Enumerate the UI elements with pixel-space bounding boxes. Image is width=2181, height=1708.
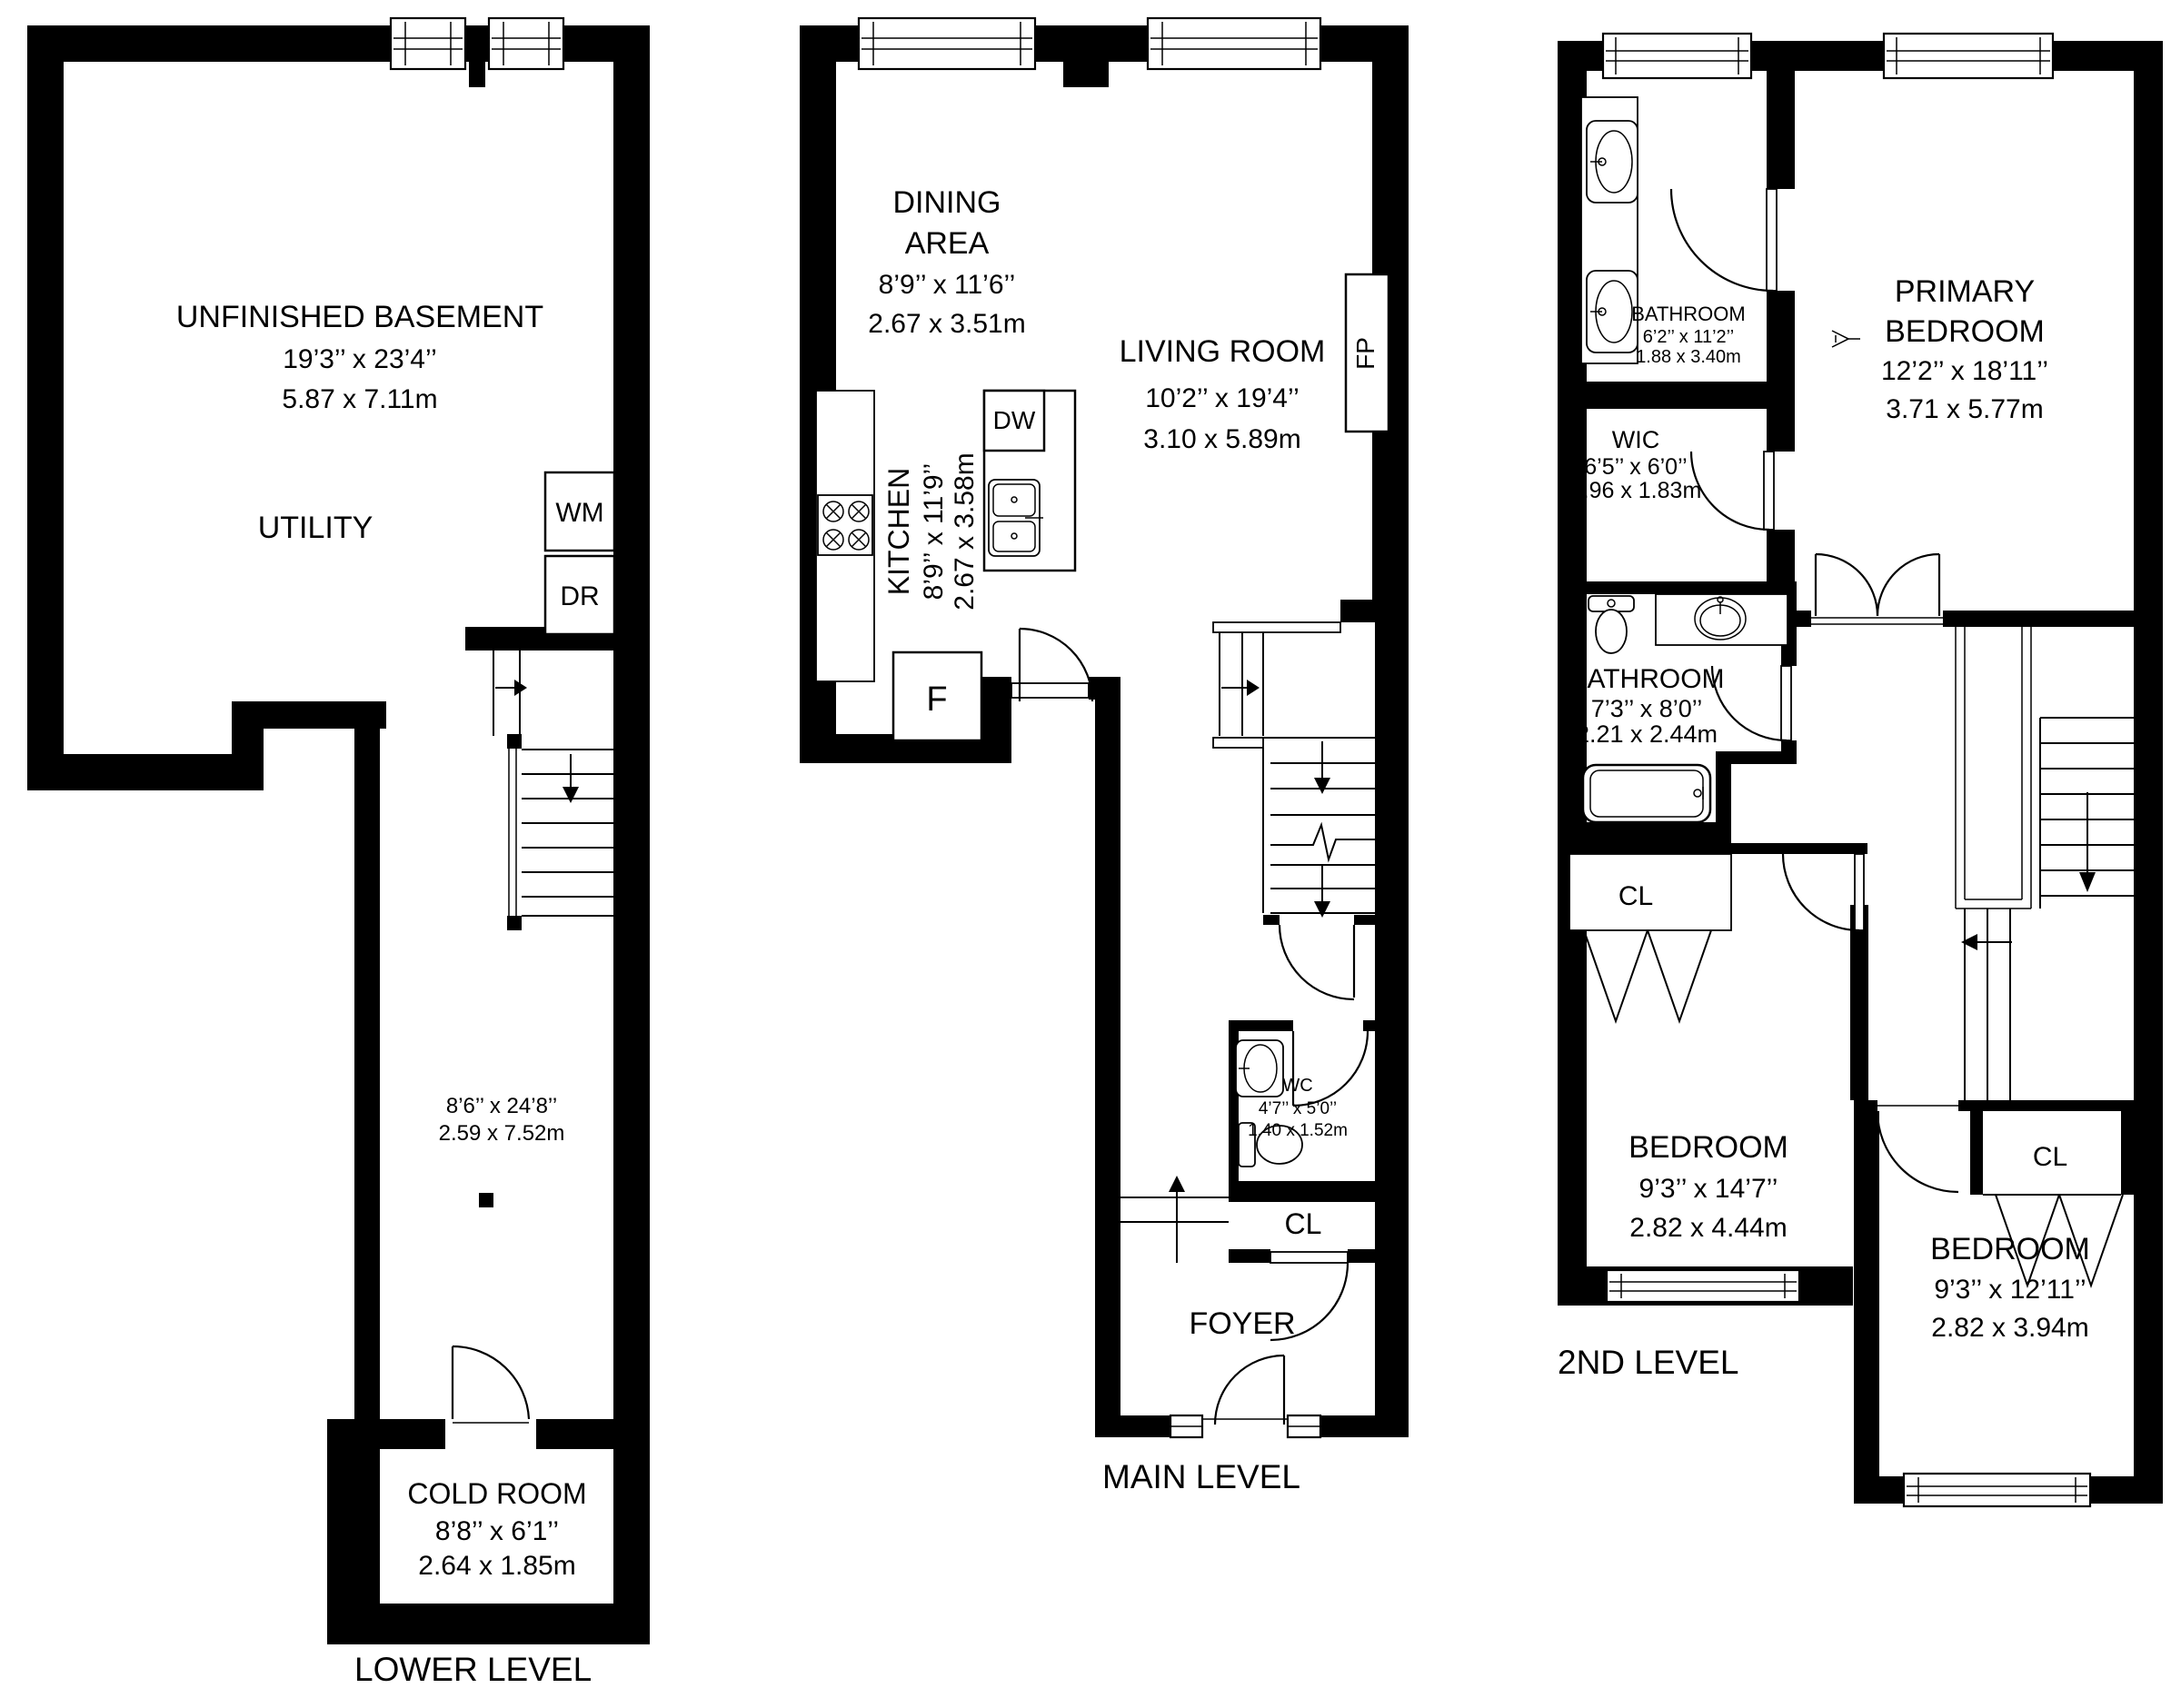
main-stairs bbox=[1213, 622, 1375, 999]
bifold-door-icon bbox=[1584, 930, 1648, 1021]
bathroom2-toilet bbox=[1588, 596, 1634, 653]
primary-metric: 3.71 x 5.77m bbox=[1886, 394, 2043, 424]
stair-arrow-down-icon bbox=[2079, 872, 2096, 892]
bathroom2-imperial: 7’3’’ x 8’0’’ bbox=[1591, 695, 1703, 722]
bedroom3-window bbox=[1904, 1474, 2090, 1506]
main-level-label: MAIN LEVEL bbox=[1102, 1458, 1300, 1495]
kitchen-imperial: 8’9’’ x 11’9’’ bbox=[919, 463, 949, 601]
wc-metric: 1.40 x 1.52m bbox=[1248, 1121, 1348, 1140]
stair-arrow-down-icon bbox=[1314, 778, 1330, 794]
fireplace-label: FP bbox=[1351, 337, 1379, 370]
bathroom2-metric: 2.21 x 2.44m bbox=[1576, 720, 1718, 748]
stair-arrow-down-icon bbox=[1314, 901, 1330, 918]
bathtub bbox=[1583, 765, 1710, 822]
living-metric: 3.10 x 5.89m bbox=[1143, 424, 1300, 454]
dining-name1: DINING bbox=[893, 185, 1001, 220]
second-stairs bbox=[1956, 627, 2134, 1100]
basement-stairs bbox=[493, 650, 613, 930]
bedroom3-imperial: 9’3’’ x 12’11’’ bbox=[1934, 1275, 2086, 1305]
wall-sconce-icon bbox=[1832, 331, 1860, 347]
cold-room-name: COLD ROOM bbox=[407, 1477, 586, 1510]
bedroom2-name: BEDROOM bbox=[1628, 1130, 1788, 1165]
primary-name2: BEDROOM bbox=[1885, 314, 2045, 349]
dishwasher-label: DW bbox=[993, 406, 1036, 434]
living-imperial: 10’2’’ x 19’4’’ bbox=[1145, 383, 1300, 413]
wic-door bbox=[1691, 452, 1774, 530]
wc-sink bbox=[1236, 1040, 1283, 1097]
ensuite-sink-2 bbox=[1587, 271, 1638, 353]
second-bathroom: BATHROOM 7’3’’ x 8’0’’ 2.21 x 2.44m bbox=[1569, 594, 1791, 822]
wc-imperial: 4’7’’ x 5’0’’ bbox=[1259, 1099, 1337, 1118]
ensuite-bathroom: BATHROOM 6’2’’ x 11’2’’ 1.88 x 3.40m bbox=[1581, 97, 1777, 367]
second-window-left bbox=[1603, 34, 1751, 78]
ensuite-sink-1 bbox=[1587, 121, 1638, 203]
stair-arrow-right-icon bbox=[1247, 680, 1260, 696]
main-level-plan: FP DW bbox=[800, 18, 1409, 1495]
primary-name1: PRIMARY bbox=[1895, 274, 2035, 309]
bathroom2-sink bbox=[1656, 594, 1788, 645]
wic-imperial: 6’5’’ x 6’0’’ bbox=[1584, 454, 1688, 480]
utility-label: UTILITY bbox=[258, 511, 373, 545]
bedroom3-name: BEDROOM bbox=[1930, 1232, 2090, 1266]
bedroom2-window bbox=[1607, 1270, 1799, 1302]
kitchen-door bbox=[1011, 629, 1092, 701]
foyer-label: FOYER bbox=[1189, 1306, 1295, 1341]
basement-imperial: 19’3’’ x 23’4’’ bbox=[283, 344, 437, 374]
ensuite-metric: 1.88 x 3.40m bbox=[1636, 347, 1741, 367]
dryer-label: DR bbox=[560, 581, 599, 611]
washer-box: WM bbox=[545, 472, 614, 551]
second-window-right bbox=[1884, 34, 2053, 78]
cold-room-door bbox=[445, 1346, 536, 1449]
bedroom2-metric: 2.82 x 4.44m bbox=[1629, 1213, 1787, 1243]
stair-arrow-left-icon bbox=[1961, 934, 1977, 950]
lower-level-label: LOWER LEVEL bbox=[354, 1651, 592, 1688]
closet-label: CL bbox=[2033, 1142, 2067, 1172]
kitchen-metric: 2.67 x 3.58m bbox=[950, 452, 980, 610]
dining-name2: AREA bbox=[905, 226, 990, 261]
basement-window-left bbox=[391, 18, 465, 69]
support-column bbox=[479, 1193, 493, 1207]
ensuite-door bbox=[1671, 189, 1777, 291]
lower-walls bbox=[27, 25, 650, 1644]
ensuite-name: BATHROOM bbox=[1631, 303, 1745, 325]
primary-double-doors bbox=[1811, 554, 1943, 624]
kitchen-sink bbox=[989, 480, 1043, 556]
foyer-stairs-up bbox=[1120, 1176, 1229, 1263]
kitchen-name: KITCHEN bbox=[882, 468, 915, 595]
lower-level-plan: WM DR UNFINISHED BASEMENT 19’3’’ x 23’4’… bbox=[27, 18, 650, 1688]
bedroom3-door bbox=[1877, 1100, 1958, 1192]
bathroom2-name: BATHROOM bbox=[1569, 664, 1724, 694]
closet-label: CL bbox=[1618, 881, 1653, 911]
wc-room: WC 4’7’’ x 5’0’’ 1.40 x 1.52m bbox=[1236, 1031, 1368, 1167]
bedroom2-imperial: 9’3’’ x 14’7’’ bbox=[1639, 1174, 1778, 1204]
basement-name: UNFINISHED BASEMENT bbox=[176, 300, 543, 334]
front-door bbox=[1170, 1355, 1320, 1437]
corridor-metric: 2.59 x 7.52m bbox=[439, 1121, 565, 1146]
closet-label: CL bbox=[1285, 1207, 1322, 1240]
wic-metric: 1.96 x 1.83m bbox=[1570, 478, 1702, 503]
ensuite-imperial: 6’2’’ x 11’2’’ bbox=[1643, 327, 1734, 347]
cold-room-metric: 2.64 x 1.85m bbox=[418, 1551, 575, 1581]
cold-room-imperial: 8’8’’ x 6’1’’ bbox=[435, 1516, 559, 1546]
main-window-right bbox=[1148, 18, 1320, 69]
wic-name: WIC bbox=[1612, 426, 1659, 453]
bifold-door-icon bbox=[1648, 930, 1711, 1021]
kitchen-island: DW bbox=[984, 391, 1075, 571]
living-name: LIVING ROOM bbox=[1120, 334, 1326, 369]
bedroom3-metric: 2.82 x 3.94m bbox=[1931, 1313, 2088, 1343]
dining-metric: 2.67 x 3.51m bbox=[868, 309, 1025, 339]
basement-metric: 5.87 x 7.11m bbox=[282, 384, 437, 414]
fridge-box: F bbox=[893, 652, 981, 740]
stair-arrow-up-icon bbox=[1169, 1176, 1185, 1192]
wc-name: WC bbox=[1282, 1076, 1312, 1096]
second-level-plan: BATHROOM 6’2’’ x 11’2’’ 1.88 x 3.40m WIC… bbox=[1558, 34, 2163, 1506]
dryer-box: DR bbox=[545, 556, 614, 634]
fireplace: FP bbox=[1346, 274, 1389, 432]
basement-window-right bbox=[489, 18, 563, 69]
stair-arrow-down-icon bbox=[563, 787, 579, 803]
main-window-left bbox=[859, 18, 1035, 69]
bedroom2-closet: CL bbox=[1569, 854, 1731, 1021]
washer-label: WM bbox=[555, 498, 603, 528]
dining-imperial: 8’9’’ x 11’6’’ bbox=[879, 270, 1016, 300]
primary-imperial: 12’2’’ x 18’11’’ bbox=[1881, 356, 2048, 386]
corridor-imperial: 8’6’’ x 24’8’’ bbox=[446, 1094, 557, 1118]
fridge-label: F bbox=[926, 680, 947, 719]
floor-plan: WM DR UNFINISHED BASEMENT 19’3’’ x 23’4’… bbox=[0, 0, 2181, 1708]
stove bbox=[818, 495, 872, 555]
wic-room: WIC 6’5’’ x 6’0’’ 1.96 x 1.83m bbox=[1570, 426, 1774, 530]
second-level-label: 2ND LEVEL bbox=[1558, 1344, 1739, 1381]
